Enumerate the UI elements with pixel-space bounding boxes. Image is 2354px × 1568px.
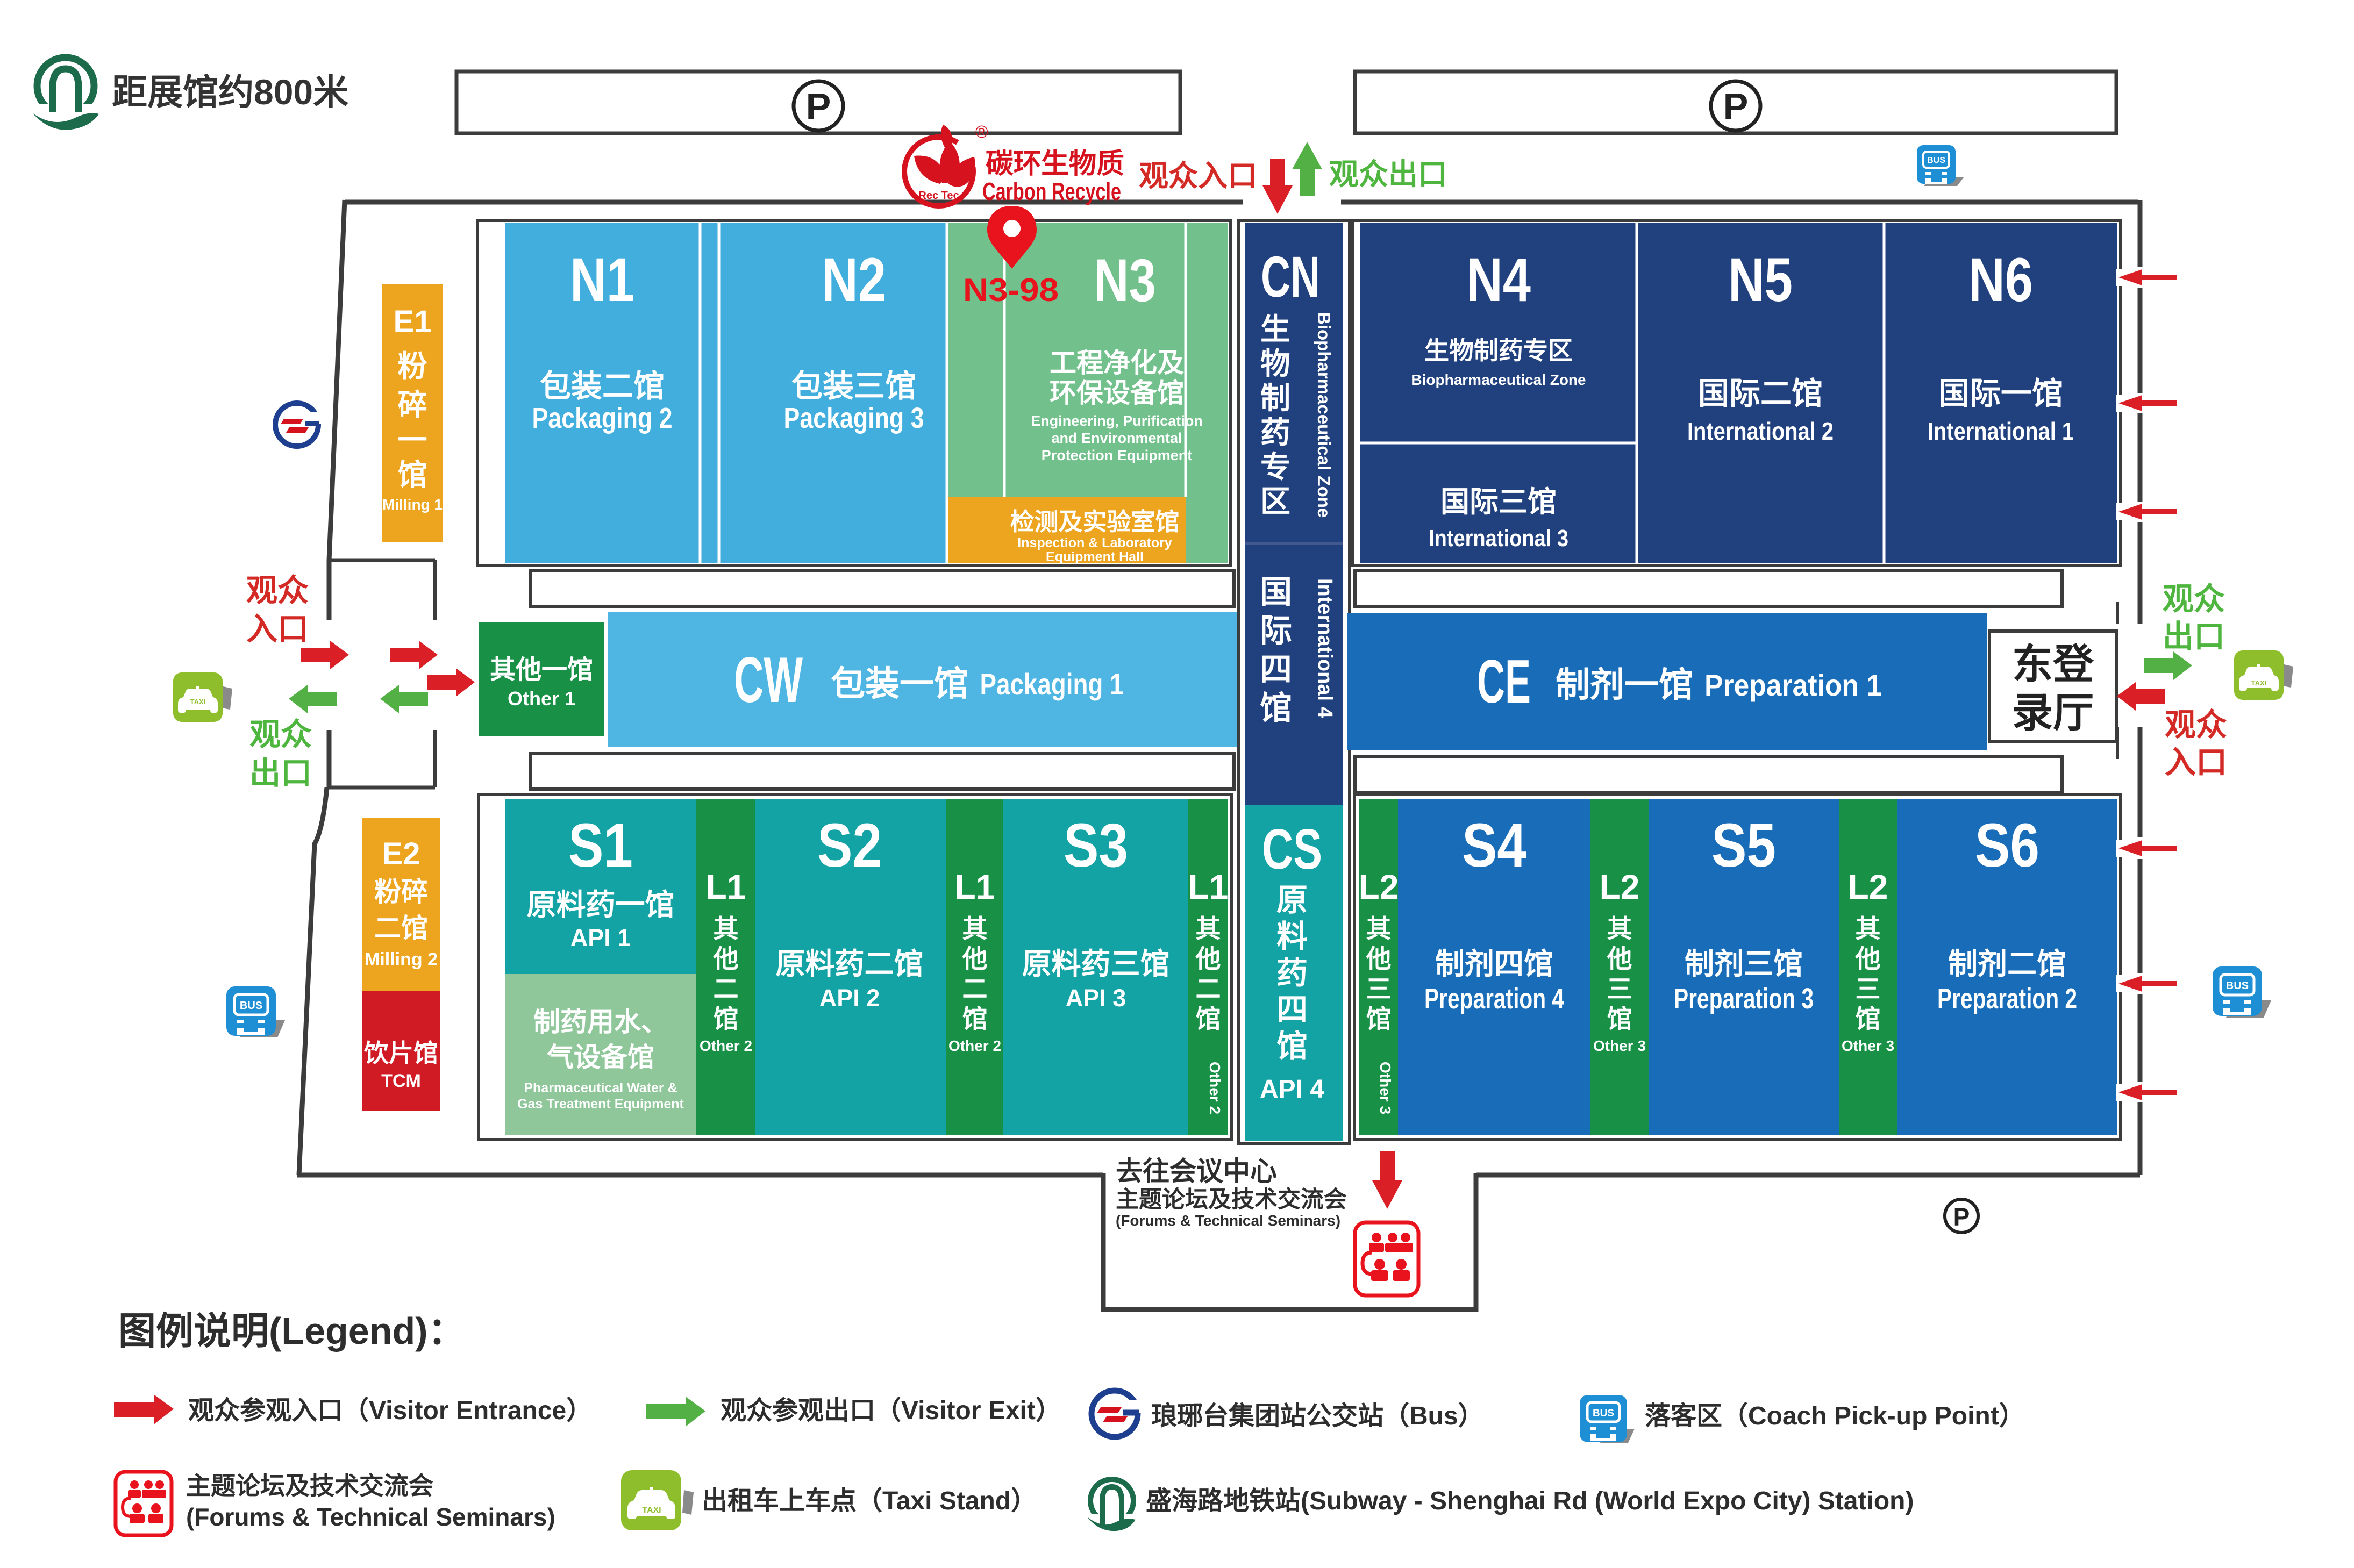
svg-text:主题论坛及技术交流会: 主题论坛及技术交流会 xyxy=(1116,1187,1347,1213)
svg-text:去往会议中心: 去往会议中心 xyxy=(1116,1156,1277,1186)
svg-text:制药用水、: 制药用水、 xyxy=(533,1007,668,1037)
svg-text:出口: 出口 xyxy=(2163,619,2225,654)
svg-text:L1: L1 xyxy=(955,868,995,906)
svg-text:Packaging 3: Packaging 3 xyxy=(784,402,924,434)
svg-text:BUS: BUS xyxy=(240,1000,262,1012)
svg-text:CS: CS xyxy=(1262,818,1322,881)
svg-text:图例说明(Legend)：: 图例说明(Legend)： xyxy=(118,1310,466,1352)
svg-text:Carbon Recycle: Carbon Recycle xyxy=(982,177,1121,205)
svg-text:一: 一 xyxy=(397,424,427,457)
svg-text:N3-98: N3-98 xyxy=(963,272,1059,308)
svg-text:环保设备馆: 环保设备馆 xyxy=(1050,378,1184,408)
svg-text:International 4: International 4 xyxy=(1314,578,1336,718)
svg-text:Other 2: Other 2 xyxy=(700,1037,752,1054)
svg-text:N2: N2 xyxy=(822,246,886,314)
svg-text:观众入口: 观众入口 xyxy=(1139,159,1257,192)
svg-text:碳环生物质: 碳环生物质 xyxy=(986,148,1124,180)
svg-text:P: P xyxy=(1953,1203,1970,1231)
svg-text:Gas Treatment Equipment: Gas Treatment Equipment xyxy=(517,1097,684,1112)
svg-text:原料药二馆: 原料药二馆 xyxy=(775,947,923,980)
svg-text:入口: 入口 xyxy=(246,612,309,647)
svg-text:Milling 1: Milling 1 xyxy=(382,496,443,513)
svg-text:气设备馆: 气设备馆 xyxy=(547,1042,654,1072)
svg-text:®: ® xyxy=(975,122,988,141)
svg-text:包装二馆: 包装二馆 xyxy=(540,369,665,404)
svg-text:距展馆约800米: 距展馆约800米 xyxy=(112,72,348,112)
svg-text:东登: 东登 xyxy=(2012,642,2094,688)
svg-text:盛海路地铁站(Subway - Shenghai Rd (W: 盛海路地铁站(Subway - Shenghai Rd (World Expo … xyxy=(1146,1487,1914,1515)
svg-text:Preparation 1: Preparation 1 xyxy=(1704,668,1882,702)
svg-text:and Environmental: and Environmental xyxy=(1051,430,1182,446)
svg-text:Other 3: Other 3 xyxy=(1593,1037,1646,1054)
svg-text:L2: L2 xyxy=(1359,868,1399,906)
svg-text:Inspection & Laboratory: Inspection & Laboratory xyxy=(1017,535,1172,550)
svg-text:制剂一馆: 制剂一馆 xyxy=(1556,665,1693,704)
svg-text:出租车上车点（Taxi Stand）: 出租车上车点（Taxi Stand） xyxy=(702,1487,1037,1515)
svg-text:生物制药专区: 生物制药专区 xyxy=(1424,336,1573,364)
svg-text:主题论坛及技术交流会: 主题论坛及技术交流会 xyxy=(186,1472,433,1500)
svg-text:国际三馆: 国际三馆 xyxy=(1440,486,1557,518)
svg-text:API 2: API 2 xyxy=(819,984,880,1012)
svg-text:琅琊台集团站公交站（Bus）: 琅琊台集团站公交站（Bus） xyxy=(1151,1402,1484,1430)
svg-text:International 1: International 1 xyxy=(1928,417,2074,445)
svg-text:Preparation 2: Preparation 2 xyxy=(1937,983,2077,1015)
svg-text:Other 2: Other 2 xyxy=(948,1037,1001,1054)
svg-text:原料药一馆: 原料药一馆 xyxy=(526,888,674,921)
svg-text:工程净化及: 工程净化及 xyxy=(1050,348,1184,378)
svg-text:Milling 2: Milling 2 xyxy=(365,949,438,970)
svg-text:TAXI: TAXI xyxy=(642,1506,661,1515)
svg-text:Biopharmaceutical Zone: Biopharmaceutical Zone xyxy=(1411,371,1586,388)
svg-text:CE: CE xyxy=(1477,648,1531,716)
svg-text:Packaging 1: Packaging 1 xyxy=(980,667,1124,701)
svg-text:观众: 观众 xyxy=(246,573,309,608)
svg-text:饮片馆: 饮片馆 xyxy=(364,1039,438,1067)
svg-text:BUS: BUS xyxy=(2226,980,2249,992)
svg-text:Other 3: Other 3 xyxy=(1842,1037,1894,1054)
svg-text:落客区（Coach Pick-up Point）: 落客区（Coach Pick-up Point） xyxy=(1645,1402,2025,1430)
svg-text:E1: E1 xyxy=(394,304,432,339)
svg-text:L1: L1 xyxy=(1188,868,1229,906)
svg-text:E2: E2 xyxy=(382,836,420,871)
svg-text:International 3: International 3 xyxy=(1429,525,1568,552)
svg-text:Biopharmaceutical Zone: Biopharmaceutical Zone xyxy=(1314,312,1334,518)
svg-text:Other 3: Other 3 xyxy=(1377,1062,1394,1114)
svg-text:CN: CN xyxy=(1261,244,1320,309)
svg-text:Pharmaceutical Water &: Pharmaceutical Water & xyxy=(524,1080,677,1096)
svg-text:馆: 馆 xyxy=(397,458,427,491)
svg-text:N5: N5 xyxy=(1728,246,1793,314)
svg-text:其他一馆: 其他一馆 xyxy=(490,656,593,684)
svg-text:Other 1: Other 1 xyxy=(508,688,575,710)
svg-text:P: P xyxy=(806,85,831,127)
svg-text:检测及实验室馆: 检测及实验室馆 xyxy=(1010,508,1179,535)
svg-text:粉: 粉 xyxy=(397,349,427,383)
svg-text:S1: S1 xyxy=(568,811,633,880)
svg-text:国际二馆: 国际二馆 xyxy=(1698,376,1823,411)
svg-text:观众出口: 观众出口 xyxy=(1329,157,1447,191)
svg-text:TAXI: TAXI xyxy=(2251,679,2267,687)
svg-text:Engineering, Purification: Engineering, Purification xyxy=(1031,413,1203,429)
svg-text:碎: 碎 xyxy=(397,388,427,421)
svg-text:N1: N1 xyxy=(570,246,634,314)
svg-text:二馆: 二馆 xyxy=(374,913,428,943)
svg-text:观众: 观众 xyxy=(249,717,312,752)
svg-text:L1: L1 xyxy=(706,868,746,906)
svg-text:观众参观入口（Visitor Entrance）: 观众参观入口（Visitor Entrance） xyxy=(188,1397,592,1425)
svg-text:包装一馆: 包装一馆 xyxy=(831,664,968,703)
svg-text:N6: N6 xyxy=(1968,246,2033,314)
svg-text:观众参观出口（Visitor Exit）: 观众参观出口（Visitor Exit） xyxy=(721,1397,1061,1425)
svg-text:International 2: International 2 xyxy=(1687,417,1834,445)
svg-text:N3: N3 xyxy=(1094,247,1156,314)
svg-text:API 4: API 4 xyxy=(1260,1075,1324,1104)
svg-text:录厅: 录厅 xyxy=(2012,690,2094,736)
svg-text:国际一馆: 国际一馆 xyxy=(1938,376,2063,411)
svg-text:入口: 入口 xyxy=(2165,745,2227,780)
svg-text:粉碎: 粉碎 xyxy=(374,877,428,907)
svg-text:L2: L2 xyxy=(1600,868,1640,906)
svg-text:Other 2: Other 2 xyxy=(1207,1062,1223,1114)
svg-text:API 3: API 3 xyxy=(1066,984,1126,1012)
svg-text:S6: S6 xyxy=(1975,811,2039,880)
svg-text:制剂二馆: 制剂二馆 xyxy=(1948,947,2066,980)
svg-text:Equipment Hall: Equipment Hall xyxy=(1046,549,1144,564)
svg-text:BUS: BUS xyxy=(1593,1408,1614,1419)
svg-text:制剂四馆: 制剂四馆 xyxy=(1435,947,1553,980)
svg-text:Preparation 4: Preparation 4 xyxy=(1424,983,1564,1015)
svg-text:(Forums & Technical Seminars): (Forums & Technical Seminars) xyxy=(186,1503,555,1531)
svg-text:出口: 出口 xyxy=(249,756,312,791)
svg-text:原料药四馆: 原料药四馆 xyxy=(1276,883,1308,1064)
svg-text:BUS: BUS xyxy=(1927,156,1945,165)
svg-text:Protection Equipment: Protection Equipment xyxy=(1042,447,1193,463)
svg-text:Preparation 3: Preparation 3 xyxy=(1674,983,1814,1015)
svg-text:S5: S5 xyxy=(1711,811,1776,880)
svg-text:API 1: API 1 xyxy=(570,924,631,951)
svg-text:包装三馆: 包装三馆 xyxy=(791,369,916,404)
svg-text:生物制药专区: 生物制药专区 xyxy=(1260,312,1290,518)
svg-text:观众: 观众 xyxy=(2163,582,2225,617)
svg-text:S4: S4 xyxy=(1462,811,1526,880)
svg-text:N4: N4 xyxy=(1466,246,1531,314)
svg-text:观众: 观众 xyxy=(2165,707,2227,742)
svg-text:TAXI: TAXI xyxy=(190,698,206,706)
svg-text:Rec Tec: Rec Tec xyxy=(918,190,959,202)
svg-text:L2: L2 xyxy=(1848,868,1888,906)
svg-text:(Forums & Technical Seminars): (Forums & Technical Seminars) xyxy=(1116,1212,1340,1229)
svg-text:Packaging 2: Packaging 2 xyxy=(532,402,673,434)
svg-text:P: P xyxy=(1723,85,1749,127)
svg-text:原料药三馆: 原料药三馆 xyxy=(1022,947,1169,980)
svg-text:TCM: TCM xyxy=(381,1071,421,1091)
svg-text:制剂三馆: 制剂三馆 xyxy=(1685,947,1803,980)
svg-text:S2: S2 xyxy=(817,811,882,880)
svg-text:CW: CW xyxy=(734,644,803,716)
svg-text:S3: S3 xyxy=(1064,811,1128,880)
